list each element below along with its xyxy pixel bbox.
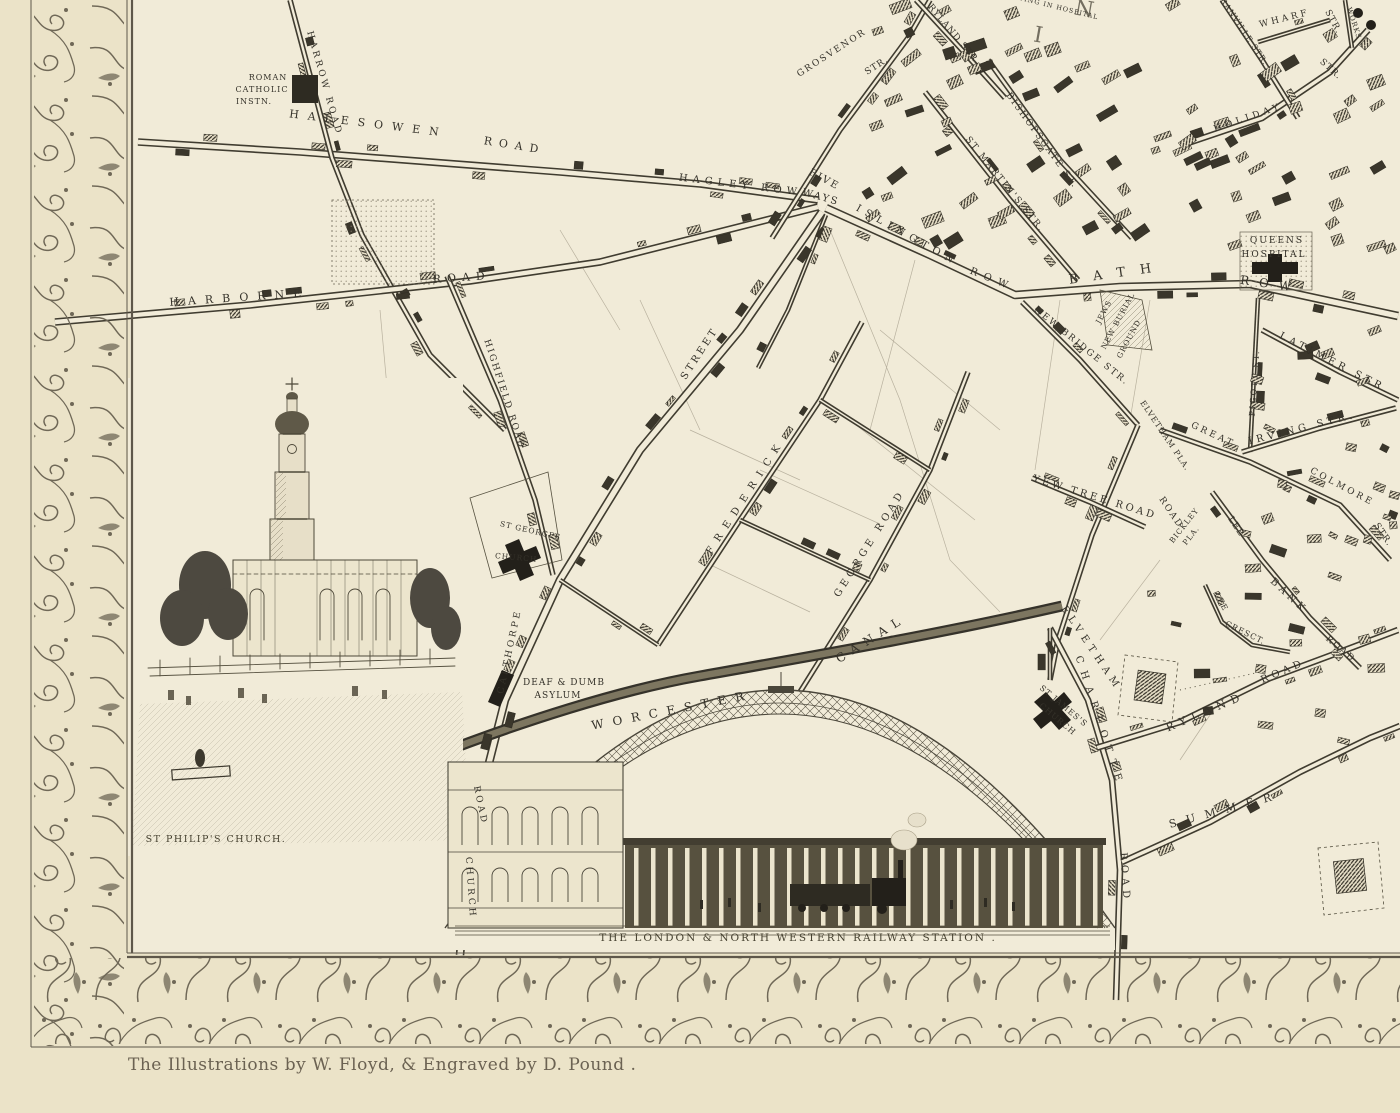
station-column (634, 848, 639, 926)
gasometer (1366, 20, 1376, 30)
map-label: HOSPITAL (1242, 250, 1307, 260)
building-block (346, 300, 354, 306)
building-block (1255, 664, 1266, 674)
station-column (668, 848, 673, 926)
building-block (1038, 654, 1045, 670)
map-label: CATHOLIC (236, 85, 289, 94)
station-column (1008, 848, 1013, 926)
building-block (1290, 639, 1302, 646)
building-block (1277, 480, 1287, 489)
map-label: QUEENS (1250, 236, 1304, 246)
building-block (472, 172, 485, 180)
building-block (1108, 880, 1115, 895)
station-column (974, 848, 979, 926)
map-label: ROMAN (249, 73, 288, 82)
garden-plot (332, 200, 434, 284)
roman-catholic-institution-building (292, 75, 318, 103)
building-block (1389, 521, 1397, 529)
building-block (336, 160, 352, 168)
station-column (957, 848, 962, 926)
building-block (316, 302, 328, 309)
church-caption: ST PHILIP'S CHURCH. (146, 834, 287, 845)
church-vignette: ST PHILIP'S CHURCH. (128, 378, 470, 856)
station-column (702, 848, 707, 926)
building-block (1187, 293, 1198, 297)
estate-building (1333, 859, 1366, 894)
map-label: INSTN. (236, 97, 272, 106)
building-block (1315, 708, 1326, 717)
building-block (312, 143, 326, 150)
building-block (1245, 593, 1261, 600)
building-block (175, 149, 189, 156)
station-column (685, 848, 690, 926)
station-column (940, 848, 945, 926)
ornate-border-left (34, 0, 124, 1046)
building-block (655, 169, 664, 175)
station-column (1076, 848, 1081, 926)
building-block (1158, 291, 1173, 299)
building-block (1147, 590, 1155, 596)
station-column (991, 848, 996, 926)
building-block (1211, 273, 1226, 281)
building-block (1307, 534, 1321, 543)
building-block (1121, 935, 1127, 949)
ornate-border-bottom (34, 958, 1400, 1044)
station-column (651, 848, 656, 926)
station-column (736, 848, 741, 926)
building-block (396, 293, 409, 300)
station-column (923, 848, 928, 926)
station-caption: THE LONDON & NORTH WESTERN RAILWAY STATI… (599, 932, 997, 944)
station-column (906, 848, 911, 926)
building-block (367, 145, 378, 151)
station-column (1093, 848, 1098, 926)
building-block (1368, 664, 1385, 673)
station-column (1025, 848, 1030, 926)
station-column (1059, 848, 1064, 926)
map-label: DEAF & DUMB (523, 678, 605, 688)
building-block (1245, 564, 1261, 573)
building-block (230, 310, 240, 319)
station-column (1042, 848, 1047, 926)
building-block (204, 134, 218, 141)
station-column (770, 848, 775, 926)
map-label: ASYLUM (534, 691, 582, 701)
building-block (1194, 669, 1210, 678)
credit-caption: The Illustrations by W. Floyd, & Engrave… (128, 1055, 636, 1075)
station-column (719, 848, 724, 926)
station-column (753, 848, 758, 926)
antique-map-sheet: ST PHILIP'S CHURCH. (0, 0, 1400, 1113)
estate-building (1134, 670, 1166, 704)
building-block (1084, 293, 1092, 301)
building-block (574, 161, 583, 169)
map-canvas: ST PHILIP'S CHURCH. (0, 0, 1400, 1113)
